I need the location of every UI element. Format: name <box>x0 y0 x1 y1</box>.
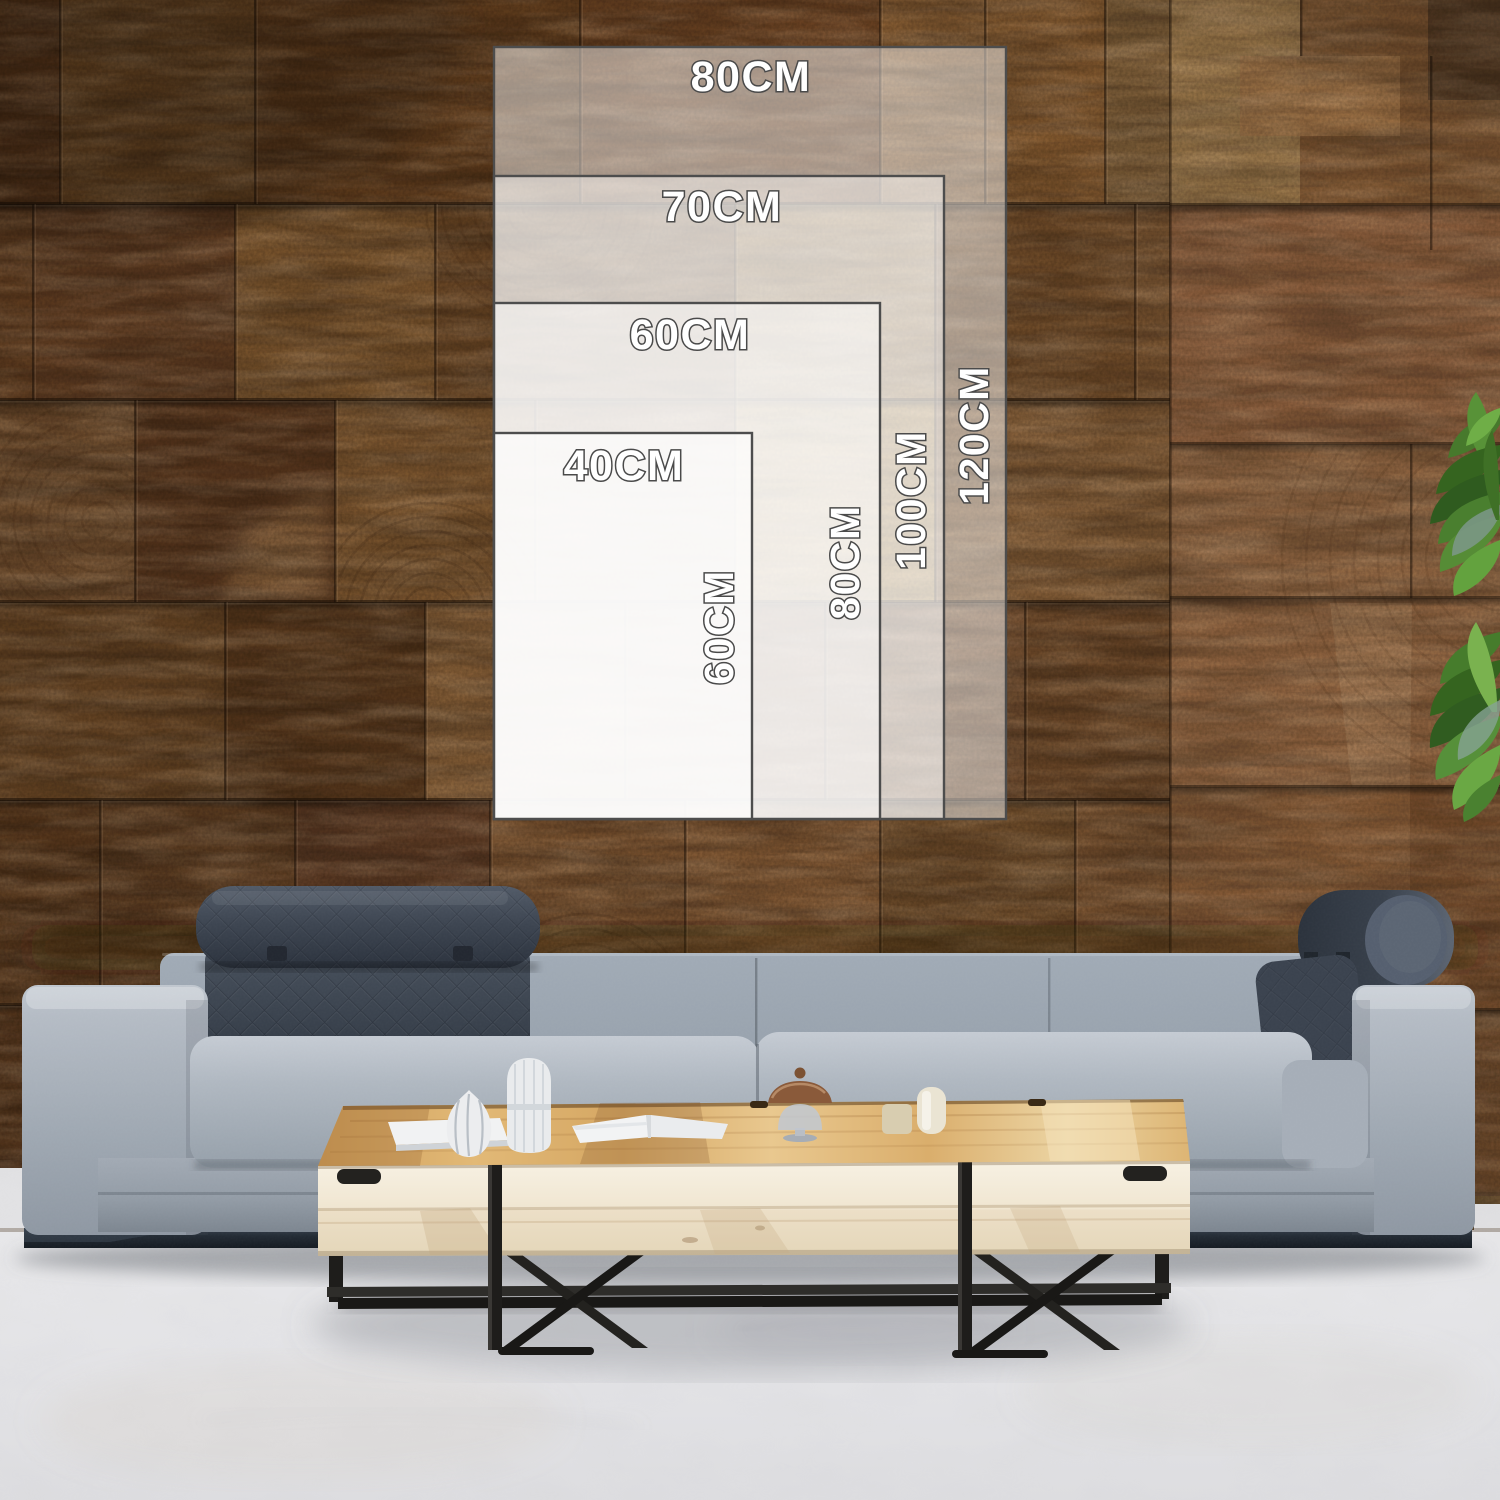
svg-text:80CM: 80CM <box>822 504 868 619</box>
svg-text:60CM: 60CM <box>630 311 751 359</box>
svg-text:100CM: 100CM <box>888 430 934 570</box>
svg-text:80CM: 80CM <box>691 53 812 101</box>
svg-text:60CM: 60CM <box>696 569 742 684</box>
svg-text:70CM: 70CM <box>662 183 783 231</box>
svg-text:120CM: 120CM <box>951 365 997 505</box>
svg-text:40CM: 40CM <box>564 442 685 490</box>
